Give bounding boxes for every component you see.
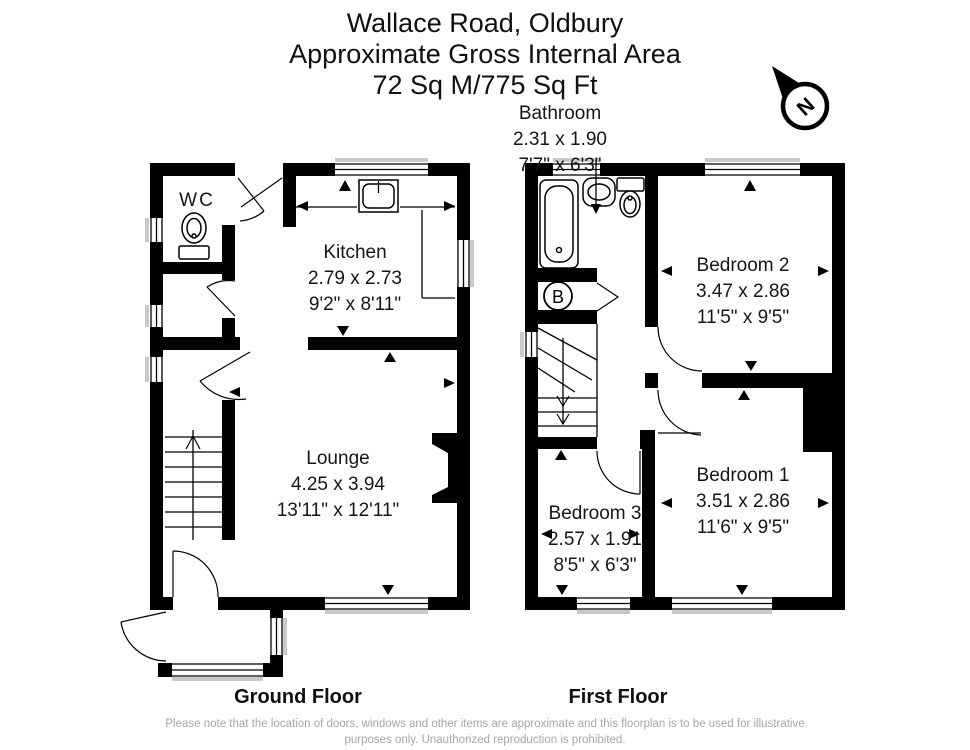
window [270,618,287,655]
window [520,332,538,357]
room-name: Kitchen [270,240,440,266]
room-label-wc: WC [170,190,224,212]
room-metric: 4.25 x 3.94 [248,472,428,498]
window [577,597,630,614]
disclaimer-line-2: purposes only. Unauthorized reproduction… [65,732,905,748]
room-metric: 2.31 x 1.90 [470,127,650,153]
room-imperial: 9'2" x 8'11" [270,292,440,318]
basin-icon [583,178,615,206]
disclaimer-line-1: Please note that the location of doors, … [65,716,905,732]
window [335,158,428,176]
window [705,158,800,176]
door-leaf [241,178,282,207]
room-name: Lounge [248,446,428,472]
page-title: Wallace Road, Oldbury Approximate Gross … [0,8,970,101]
room-imperial: 13'11" x 12'11" [248,498,428,524]
door-arc [207,281,235,287]
room-imperial: 7'7" x 6'3" [470,153,650,179]
title-line-2: Approximate Gross Internal Area [0,39,970,70]
room-name: Bedroom 1 [653,463,833,489]
title-line-3: 72 Sq M/775 Sq Ft [0,70,970,101]
window [145,305,163,327]
ground-floor-plan [121,158,474,681]
door-arc [173,551,218,597]
room-label-bathroom: Bathroom 2.31 x 1.90 7'7" x 6'3" [470,101,650,179]
toilet-icon [179,213,209,259]
window [172,663,263,681]
room-name: Bathroom [470,101,650,127]
room-metric: 2.57 x 1.91 [505,527,685,553]
room-name: Bedroom 2 [653,253,833,279]
room-label-kitchen: Kitchen 2.79 x 2.73 9'2" x 8'11" [270,240,440,318]
door-leaf [200,352,250,381]
room-name: WC [179,190,215,211]
door-arc-bedroom2 [658,327,702,371]
room-imperial: 11'5" x 9'5" [653,305,833,331]
first-floor-label: First Floor [518,686,718,709]
bath-icon [540,180,578,268]
room-label-bedroom3: Bedroom 3 2.57 x 1.91 8'5" x 6'3" [505,501,685,579]
title-line-1: Wallace Road, Oldbury [0,8,970,39]
window [325,597,428,614]
stairs-ground-icon [165,430,222,540]
door-leaf [121,612,166,622]
boiler-icon: B [544,282,572,310]
disclaimer-text: Please note that the location of doors, … [65,716,905,748]
room-metric: 3.47 x 2.86 [653,279,833,305]
stairs-first-icon [538,324,597,437]
ground-floor-label: Ground Floor [198,686,398,709]
room-label-lounge: Lounge 4.25 x 3.94 13'11" x 12'11" [248,446,428,524]
door-arc [121,622,166,661]
window [145,357,163,382]
door-arc-bedroom3 [597,451,640,494]
cupboard-door [597,283,618,311]
boiler-label: B [552,287,564,307]
fireplace-icon [432,433,457,503]
room-label-bedroom2: Bedroom 2 3.47 x 2.86 11'5" x 9'5" [653,253,833,331]
door-leaf [207,287,235,316]
window [672,597,772,614]
door-arc [240,211,264,221]
toilet-icon [617,178,644,217]
room-metric: 2.79 x 2.73 [270,266,440,292]
door-arc-bedroom1 [658,390,701,435]
room-imperial: 8'5" x 6'3" [505,553,685,579]
window [457,240,474,287]
window [145,218,163,242]
room-name: Bedroom 3 [505,501,685,527]
floorplan-page: B [0,0,970,750]
sink-icon [359,180,398,212]
